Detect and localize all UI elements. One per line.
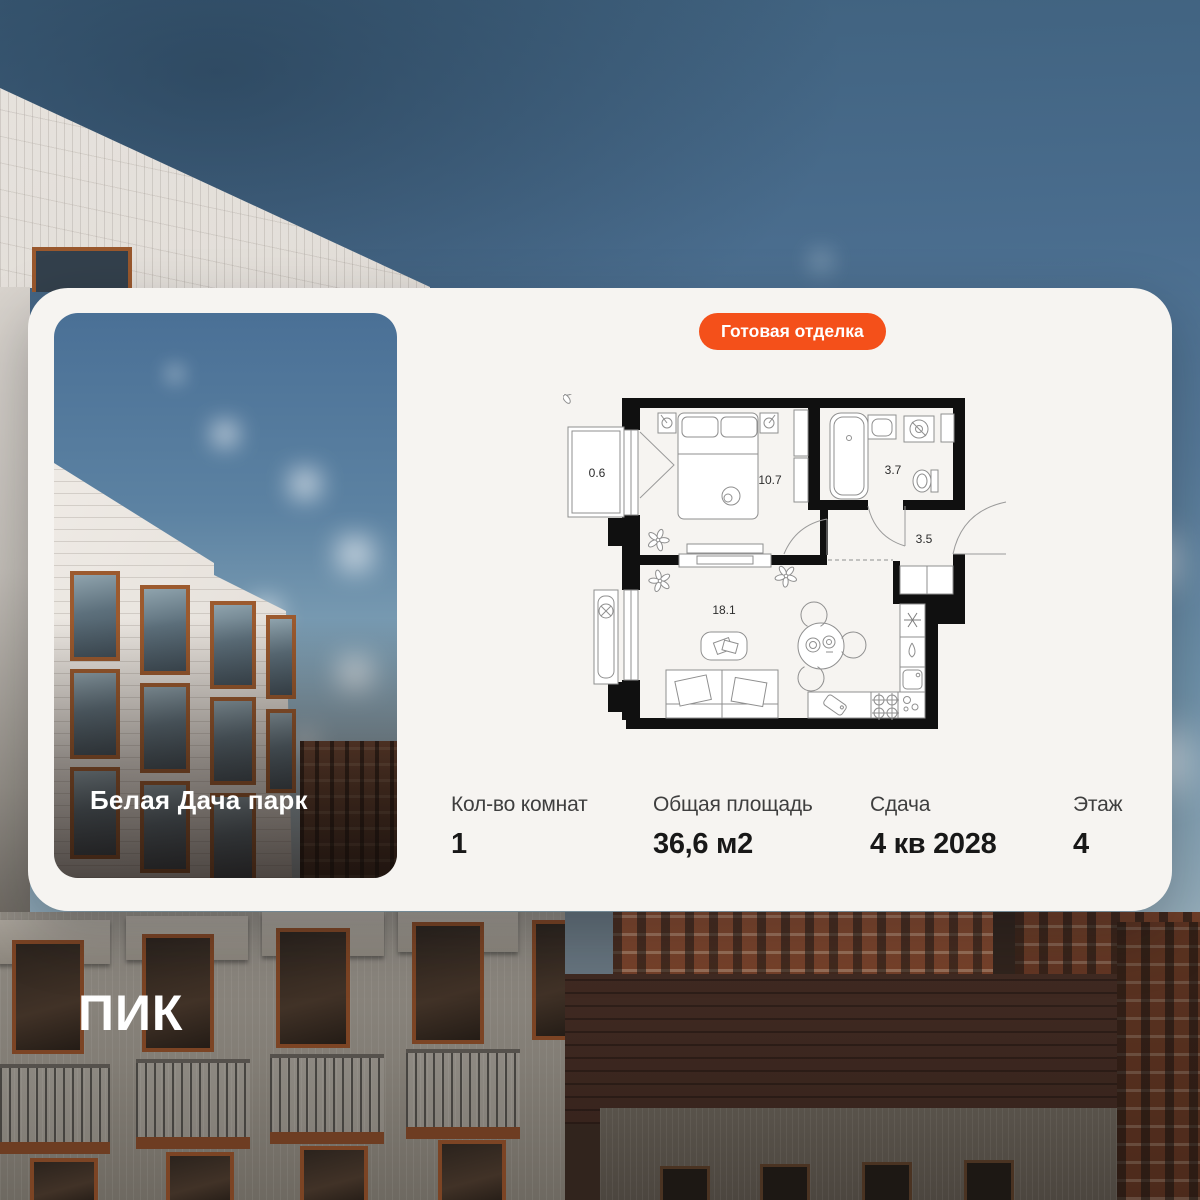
bottom-facades [0, 912, 1200, 1200]
facade-window [166, 1152, 234, 1200]
photo-dark-overlay [54, 618, 397, 878]
photo-clouds [54, 313, 56, 315]
page: { "card": { "badge": { "label": "Готовая… [0, 0, 1200, 1200]
stat-area: Общая площадь 36,6 м2 [653, 793, 813, 861]
facade-window [30, 1158, 98, 1200]
room-area-balcony: 0.6 [589, 466, 606, 480]
project-photo: Белая Дача парк [54, 313, 397, 878]
finish-badge: Готовая отделка [699, 313, 886, 350]
brick-parapet [565, 974, 1200, 1124]
stat-value: 4 кв 2028 [870, 828, 996, 861]
stat-label: Общая площадь [653, 793, 813, 817]
facade-window [660, 1166, 710, 1200]
stat-value: 4 [1073, 828, 1122, 861]
balcony-railing [136, 1059, 250, 1149]
balcony-railing [0, 1064, 110, 1154]
building-left-strip [0, 287, 30, 912]
facade-window [12, 940, 84, 1054]
facade-window [412, 922, 484, 1044]
facade-window [276, 928, 350, 1048]
building-window [32, 247, 132, 292]
facade-window [760, 1164, 810, 1200]
stat-floor: Этаж 4 [1073, 793, 1122, 861]
right-building [1117, 922, 1200, 1200]
facade-window [300, 1146, 368, 1200]
stat-label: Этаж [1073, 793, 1122, 817]
stat-delivery: Сдача 4 кв 2028 [870, 793, 996, 861]
stat-label: Кол-во комнат [451, 793, 588, 817]
balcony-railing [406, 1049, 520, 1139]
brick-buildings [565, 912, 1200, 1200]
pik-logo: ПИК [78, 984, 183, 1042]
room-area-bathroom: 3.7 [885, 463, 902, 477]
floor-plan: 0.6 10.7 3.7 3.5 18.1 [563, 394, 1013, 739]
facade-window [964, 1160, 1014, 1200]
room-area-living: 18.1 [712, 603, 736, 617]
lower-wall [600, 1108, 1120, 1200]
facade-window [438, 1140, 506, 1200]
stat-value: 36,6 м2 [653, 828, 813, 861]
plan-room-labels: 0.6 10.7 3.7 3.5 18.1 [589, 463, 933, 617]
room-area-bedroom: 10.7 [758, 473, 782, 487]
stat-label: Сдача [870, 793, 996, 817]
listing-card[interactable]: Белая Дача парк Готовая отделка [28, 288, 1172, 911]
stat-rooms: Кол-во комнат 1 [451, 793, 588, 861]
stat-value: 1 [451, 828, 588, 861]
room-area-hallway: 3.5 [916, 532, 933, 546]
project-title: Белая Дача парк [90, 785, 308, 816]
white-facade [0, 912, 565, 1200]
facade-window [862, 1162, 912, 1200]
balcony-railing [270, 1054, 384, 1144]
